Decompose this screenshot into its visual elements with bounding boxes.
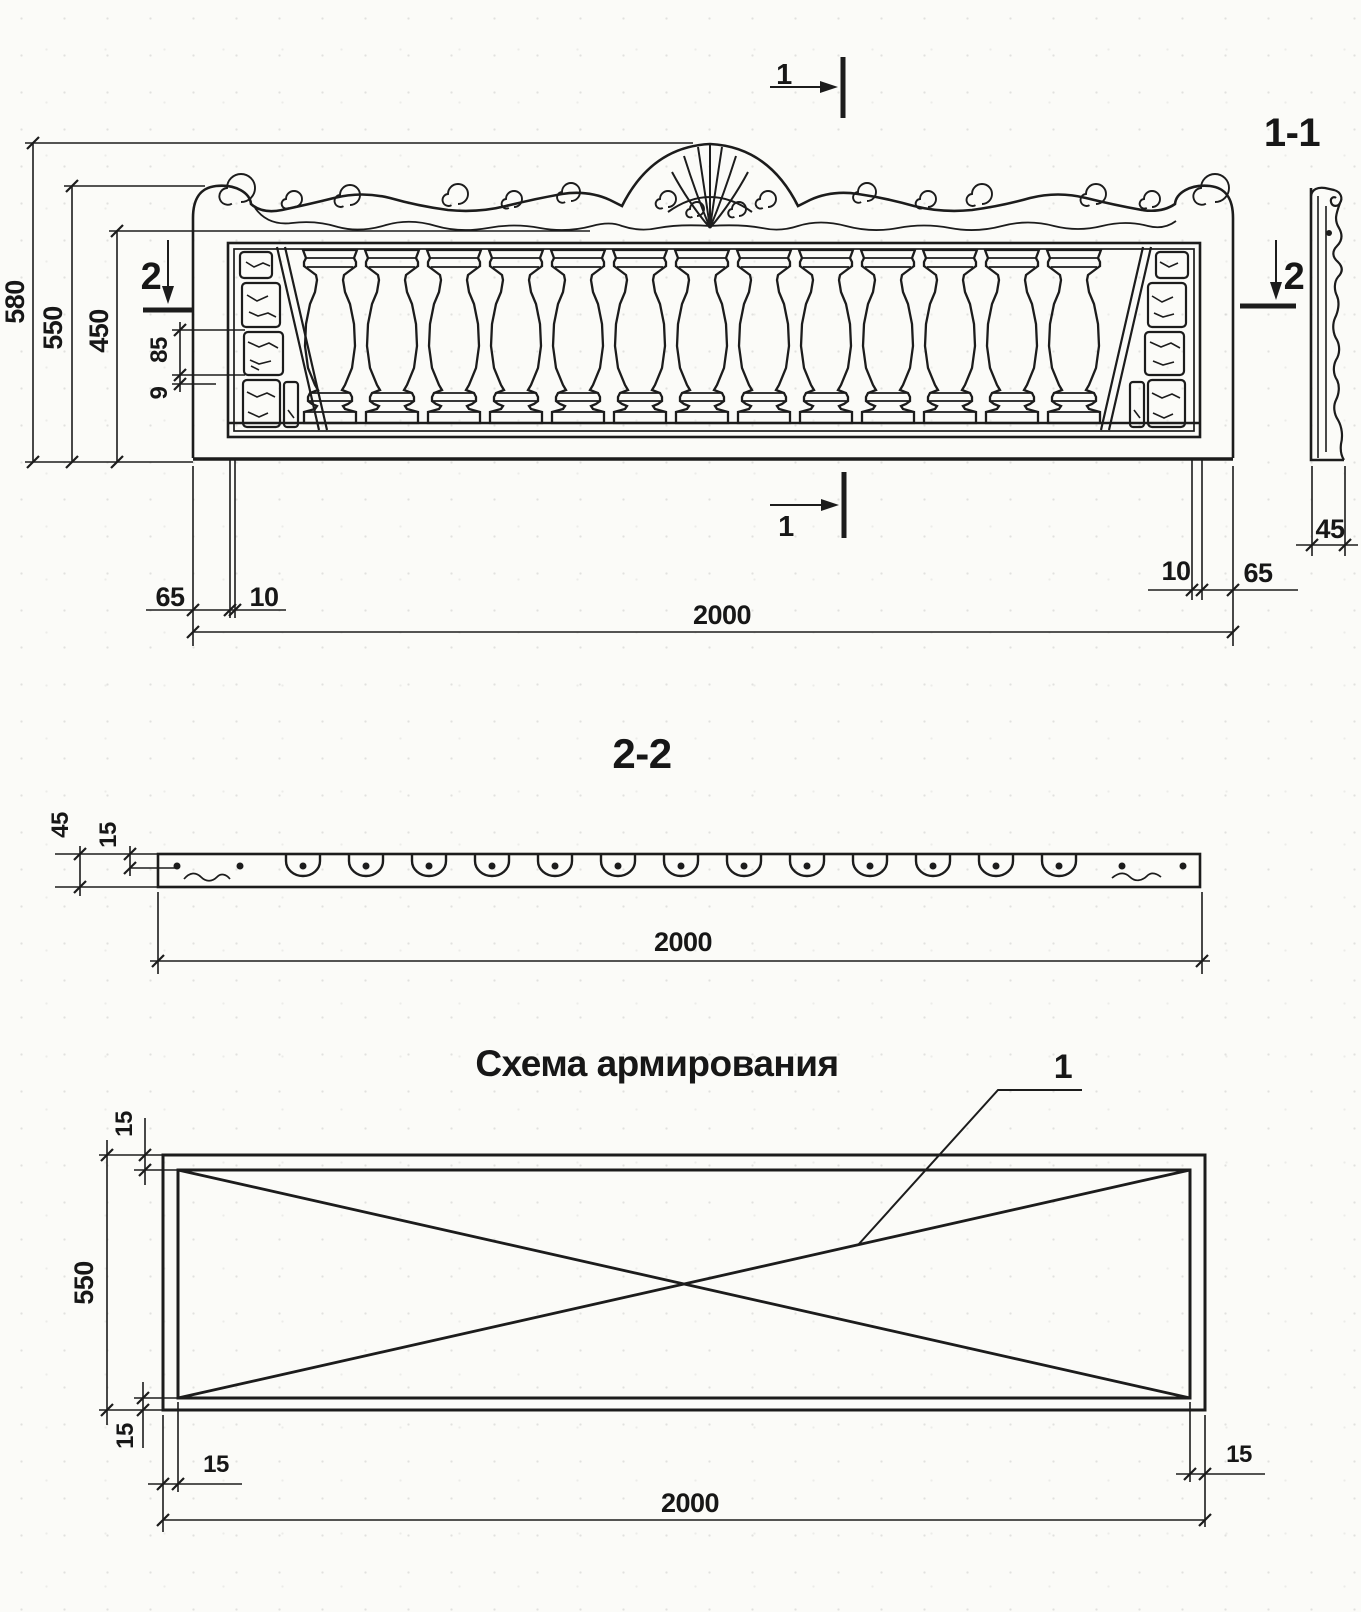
spiral-curl (282, 191, 302, 209)
dim-cover-left: 15 (203, 1451, 229, 1478)
dim-cover-right: 15 (1226, 1441, 1252, 1468)
dim-panel-height: 550 (38, 306, 68, 350)
dim-total-height: 580 (0, 280, 30, 324)
rebar-dot (867, 863, 874, 870)
baluster (923, 250, 977, 423)
dim-strip-cover: 15 (95, 822, 122, 848)
baluster (799, 250, 853, 423)
inset-tile-small (284, 382, 298, 427)
spiral-curl (756, 191, 776, 209)
baluster (1047, 250, 1101, 423)
dim-cover-top: 15 (111, 1111, 138, 1137)
section-1-top-label: 1 (776, 59, 792, 91)
inset-tile (1148, 283, 1186, 327)
spiral-curl (1081, 184, 1106, 206)
profile-top-curl (1311, 188, 1341, 206)
baluster (427, 250, 481, 423)
crest-leaf-edge (255, 208, 1176, 230)
rebar-dot (1056, 863, 1063, 870)
baluster-rings (1048, 258, 1100, 412)
baluster-rings (800, 258, 852, 412)
section-2-right-arrowhead-icon (1270, 282, 1282, 300)
dimension-ticks (27, 137, 1351, 1526)
baluster-rings (738, 258, 790, 412)
rebar-dot (1180, 863, 1187, 870)
baluster-rings (924, 258, 976, 412)
inset-tile (244, 332, 283, 375)
dim-cover-bottom: 15 (112, 1423, 139, 1449)
baluster (675, 250, 729, 423)
profile-wavy-face (1333, 203, 1344, 460)
section-1-bottom-label: 1 (778, 511, 794, 543)
dimensions-2-2: 45 15 2000 (47, 812, 1210, 974)
dim-strip-length: 2000 (654, 927, 712, 957)
dim-profile-thickness: 45 (1315, 514, 1345, 544)
ext-lines-45-strip (55, 854, 158, 887)
dimline-15-strip (130, 846, 177, 876)
section-1-bottom-arrowhead-icon (821, 499, 839, 511)
baluster-rings (304, 258, 356, 412)
spiral-curl (967, 184, 992, 206)
baluster-rings (366, 258, 418, 412)
tile-veins (1134, 262, 1180, 418)
dim-schema-height: 550 (69, 1261, 99, 1305)
dim-inset-85: 85 (146, 337, 173, 363)
drawing-sheet: 1 1 2 2 (0, 0, 1361, 1612)
ext-lines-schema-left (99, 1155, 180, 1410)
baluster (365, 250, 419, 423)
spiral-curl (656, 191, 676, 209)
dim-right-gap: 10 (1161, 556, 1190, 586)
rebar-dot (993, 863, 1000, 870)
dim-right-end: 65 (1243, 558, 1273, 588)
dim-left-end: 65 (155, 582, 185, 612)
section-1-1-label: 1-1 (1264, 111, 1321, 155)
inset-tile-small (1130, 382, 1144, 427)
baluster-pockets (286, 855, 1076, 876)
rebar-dot (426, 863, 433, 870)
baluster-rings (676, 258, 728, 412)
dim-inset-9: 9 (146, 386, 173, 399)
baluster-rings (490, 258, 542, 412)
rebar-dot (804, 863, 811, 870)
dim-length-front: 2000 (693, 600, 751, 630)
rebar-dot (930, 863, 937, 870)
rebar-dot (489, 863, 496, 870)
baluster-rings (428, 258, 480, 412)
baluster-rings (862, 258, 914, 412)
section-1-top-arrowhead-icon (820, 81, 838, 93)
profile-inner-lines (1318, 196, 1326, 458)
baluster-rings (614, 258, 666, 412)
section-2-2-label: 2-2 (612, 730, 671, 777)
blueprint-svg: 1 1 2 2 (0, 0, 1361, 1612)
baluster (861, 250, 915, 423)
spiral-curl (443, 184, 468, 206)
baluster (985, 250, 1039, 423)
balusters (303, 250, 1101, 423)
front-view: 1 1 2 2 (0, 57, 1358, 646)
baluster (613, 250, 667, 423)
baluster (489, 250, 543, 423)
rebar-dot (552, 863, 559, 870)
section-2-2-view: 2-2 45 15 2000 (47, 730, 1210, 974)
reinforcement-schema: Схема армирования 1 15 550 15 15 15 2000 (69, 1043, 1265, 1532)
dimensions-schema: 15 550 15 15 15 2000 (69, 1111, 1265, 1532)
rebar-dot (300, 863, 307, 870)
section-strip (158, 854, 1200, 887)
inset-tile (242, 283, 280, 327)
inset-tile (1145, 332, 1184, 375)
section-2-right-label: 2 (1284, 256, 1305, 298)
spiral-curl (853, 183, 876, 203)
rebar-dot (237, 863, 244, 870)
section-2-left-arrowhead-icon (162, 286, 174, 304)
rebar-dot (615, 863, 622, 870)
baluster (551, 250, 605, 423)
baluster-rings (986, 258, 1038, 412)
schema-diagonal-rebar (178, 1170, 1190, 1398)
section-2-left-label: 2 (141, 256, 162, 298)
rebar-dot (741, 863, 748, 870)
dim-left-gap: 10 (249, 582, 278, 612)
rebar-dot (678, 863, 685, 870)
rebar-leader-line (858, 1090, 1082, 1245)
spiral-curl (1193, 174, 1229, 205)
spiral-curl (1140, 191, 1160, 209)
end-panel-right (1101, 247, 1188, 430)
crest-ornament (193, 144, 1233, 230)
schema-outer-rect (163, 1155, 1205, 1410)
baluster (737, 250, 791, 423)
rebar-dot (1119, 863, 1126, 870)
inset-tile (1148, 380, 1185, 427)
rebar-dot (363, 863, 370, 870)
baluster-rings (552, 258, 604, 412)
dim-schema-length: 2000 (661, 1488, 719, 1518)
profile-rebar-dot (1326, 230, 1332, 236)
dim-strip-thickness: 45 (47, 812, 74, 838)
rebar-item-label: 1 (1054, 1048, 1072, 1086)
dim-opening-height: 450 (84, 309, 114, 353)
inset-tile (243, 380, 280, 427)
schema-title: Схема армирования (475, 1043, 838, 1084)
